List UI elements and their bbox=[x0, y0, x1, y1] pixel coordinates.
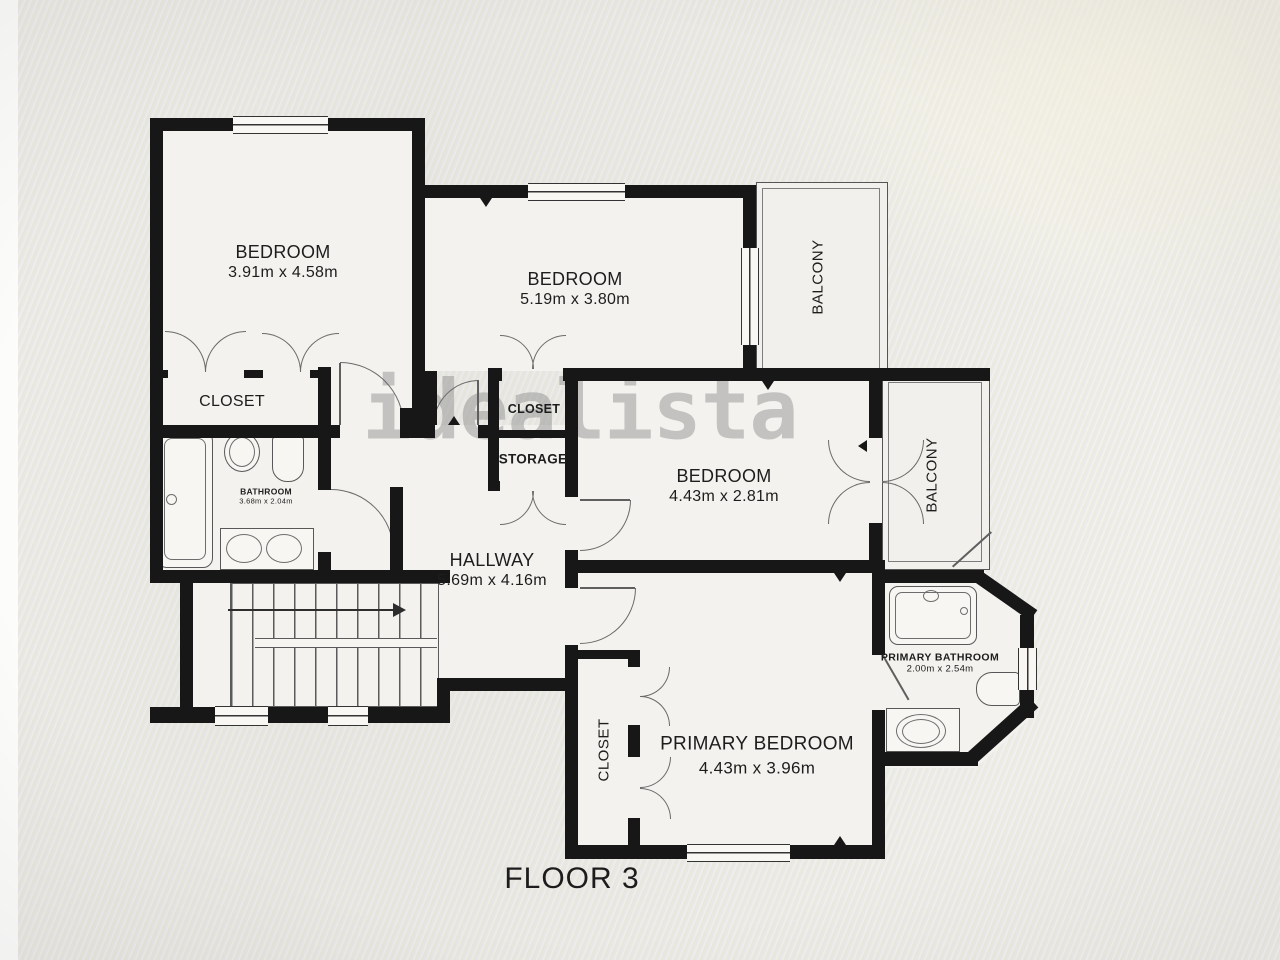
primary-bathtub-knob bbox=[960, 607, 968, 615]
room-dims: 5.19m x 3.80m bbox=[520, 291, 630, 309]
room-dims: 3.68m x 2.04m bbox=[239, 497, 293, 506]
vanity-sink-right bbox=[266, 534, 302, 563]
wall bbox=[565, 678, 578, 859]
wall-marker bbox=[858, 440, 867, 452]
wall bbox=[869, 381, 882, 438]
wall bbox=[628, 725, 640, 757]
closet-mid-label: CLOSET bbox=[508, 402, 561, 416]
floor-plan-photo: idealista bbox=[0, 0, 1280, 960]
room-dims: 4.43m x 3.96m bbox=[660, 759, 854, 779]
screen-edge-highlight bbox=[0, 0, 18, 960]
wall bbox=[412, 118, 425, 438]
door-leaf-bedroom1 bbox=[339, 363, 341, 425]
floor-label: FLOOR 3 bbox=[504, 862, 639, 896]
wall bbox=[872, 710, 885, 858]
wall bbox=[743, 185, 756, 248]
wall bbox=[310, 370, 331, 378]
room-name: PRIMARY BEDROOM bbox=[660, 734, 854, 756]
closet-primary-label: CLOSET bbox=[596, 718, 613, 781]
bedroom-top-left-label: BEDROOM 3.91m x 4.58m bbox=[228, 242, 338, 282]
window bbox=[233, 116, 328, 134]
wall bbox=[180, 570, 193, 723]
room-name: BEDROOM bbox=[228, 242, 338, 263]
wall bbox=[244, 370, 263, 378]
room-name: BATHROOM bbox=[239, 487, 293, 497]
bedroom-top-mid-label: BEDROOM 5.19m x 3.80m bbox=[520, 269, 630, 309]
door-leaf-bedroom2 bbox=[477, 380, 479, 425]
bathtub-drain bbox=[166, 494, 177, 505]
wall bbox=[628, 818, 640, 848]
balcony-mid-label: BALCONY bbox=[924, 437, 941, 512]
bidet bbox=[976, 672, 1020, 706]
window bbox=[1018, 648, 1037, 690]
primary-bathtub-faucet bbox=[923, 590, 939, 602]
wall bbox=[150, 707, 450, 723]
wall bbox=[150, 425, 340, 438]
window bbox=[328, 706, 368, 726]
wall bbox=[869, 523, 882, 573]
staircase-direction-arrow-icon bbox=[393, 603, 406, 617]
primary-bathroom-label: PRIMARY BATHROOM 2.00m x 2.54m bbox=[881, 652, 999, 675]
wall bbox=[790, 845, 885, 859]
primary-toilet-inner bbox=[902, 719, 940, 744]
primary-door-leaf bbox=[580, 587, 635, 589]
primary-bedroom-label: PRIMARY BEDROOM 4.43m x 3.96m bbox=[660, 734, 854, 779]
window bbox=[528, 183, 625, 201]
wall bbox=[563, 368, 990, 381]
wall bbox=[578, 560, 885, 573]
wall bbox=[318, 552, 331, 570]
room-name: BEDROOM bbox=[669, 466, 779, 487]
room-dims: 4.43m x 2.81m bbox=[669, 488, 779, 506]
wall bbox=[150, 118, 163, 583]
window bbox=[741, 248, 759, 345]
wall bbox=[872, 573, 885, 655]
wall bbox=[390, 487, 403, 570]
sink-inner bbox=[229, 437, 255, 467]
closet-bedroom1-label: CLOSET bbox=[199, 393, 265, 411]
window bbox=[687, 844, 790, 862]
wall bbox=[318, 367, 331, 490]
wall bbox=[1020, 615, 1034, 648]
staircase-direction-line bbox=[228, 609, 394, 611]
wall-marker bbox=[480, 198, 492, 207]
room-name: PRIMARY BATHROOM bbox=[881, 652, 999, 664]
wall-marker bbox=[762, 381, 774, 390]
bathroom-label: BATHROOM 3.68m x 2.04m bbox=[239, 487, 293, 506]
window bbox=[215, 706, 268, 726]
wall bbox=[437, 678, 578, 691]
wall bbox=[565, 550, 578, 588]
staircase-rail bbox=[255, 638, 437, 648]
wall bbox=[488, 481, 500, 491]
room-name: BEDROOM bbox=[520, 269, 630, 290]
room-dims: 2.00m x 2.54m bbox=[881, 664, 999, 675]
wall bbox=[488, 368, 499, 488]
wall bbox=[565, 368, 578, 497]
room-dims: 3.91m x 4.58m bbox=[228, 264, 338, 282]
wall bbox=[565, 845, 687, 859]
bedroom-mid-label: BEDROOM 4.43m x 2.81m bbox=[669, 466, 779, 506]
wall bbox=[150, 570, 450, 583]
room-name: HALLWAY bbox=[437, 550, 547, 571]
balcony-top-label: BALCONY bbox=[810, 239, 827, 314]
wall-marker bbox=[834, 573, 846, 582]
bedroom3-door-leaf bbox=[580, 499, 630, 501]
vanity-sink-left bbox=[226, 534, 262, 563]
wall-marker bbox=[448, 416, 460, 425]
hallway-label: HALLWAY 5.69m x 4.16m bbox=[437, 550, 547, 590]
wall bbox=[150, 370, 168, 378]
storage-label: STORAGE bbox=[499, 452, 568, 467]
wall bbox=[878, 752, 978, 766]
wall bbox=[425, 371, 437, 425]
wall bbox=[628, 650, 640, 667]
wall-marker bbox=[834, 836, 846, 845]
room-dims: 5.69m x 4.16m bbox=[437, 572, 547, 590]
wall bbox=[882, 570, 984, 583]
toilet bbox=[272, 436, 304, 482]
